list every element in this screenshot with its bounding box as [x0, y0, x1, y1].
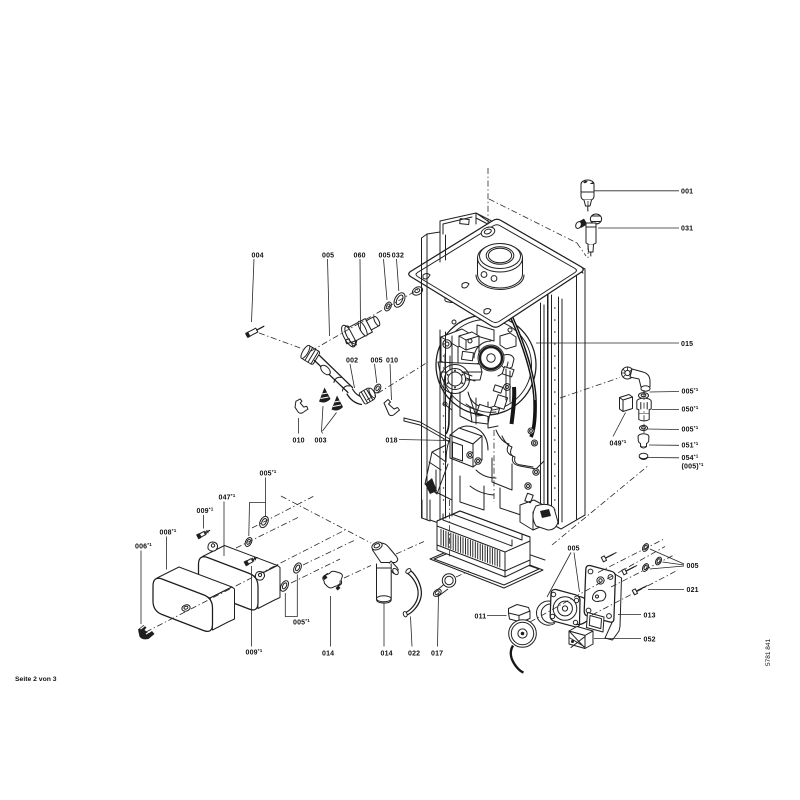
svg-text:022: 022: [408, 651, 420, 658]
svg-text:5781 841: 5781 841: [765, 639, 772, 666]
svg-text:006*1: 006*1: [135, 542, 152, 551]
svg-text:010: 010: [386, 358, 398, 365]
svg-text:005: 005: [371, 358, 383, 365]
svg-text:005: 005: [379, 252, 391, 259]
svg-text:002: 002: [346, 358, 358, 365]
svg-text:021: 021: [687, 587, 699, 594]
svg-text:008*1: 008*1: [160, 528, 177, 537]
svg-text:032: 032: [392, 252, 404, 259]
svg-text:050*1: 050*1: [682, 405, 699, 414]
svg-text:060: 060: [354, 252, 366, 259]
svg-text:005: 005: [568, 546, 580, 553]
svg-text:009*1: 009*1: [197, 507, 214, 516]
svg-text:018: 018: [386, 438, 398, 445]
svg-text:005: 005: [687, 563, 699, 570]
svg-text:051*1: 051*1: [682, 441, 699, 450]
svg-text:015: 015: [681, 341, 693, 348]
svg-text:047*1: 047*1: [219, 493, 236, 502]
svg-text:005*1: 005*1: [260, 469, 277, 478]
svg-text:Seite 2 von 3: Seite 2 von 3: [15, 676, 57, 683]
svg-text:005*1: 005*1: [293, 618, 310, 627]
svg-text:004: 004: [252, 252, 264, 259]
svg-text:014: 014: [381, 651, 393, 658]
svg-text:005*1: 005*1: [682, 425, 699, 434]
svg-text:003: 003: [315, 438, 327, 445]
svg-text:010: 010: [293, 438, 305, 445]
svg-text:049*1: 049*1: [610, 439, 627, 448]
svg-text:001: 001: [681, 189, 693, 196]
svg-text:017: 017: [431, 651, 443, 658]
svg-text:009*1: 009*1: [246, 648, 263, 657]
svg-text:054*1: 054*1: [682, 454, 699, 463]
svg-text:005: 005: [322, 252, 334, 259]
svg-text:031: 031: [681, 226, 693, 233]
svg-text:011: 011: [475, 614, 487, 621]
svg-text:013: 013: [644, 613, 656, 620]
svg-text:014: 014: [322, 651, 334, 658]
svg-text:005*1: 005*1: [682, 387, 699, 396]
svg-text:052: 052: [644, 637, 656, 644]
svg-text:(005)*1: (005)*1: [682, 462, 704, 471]
